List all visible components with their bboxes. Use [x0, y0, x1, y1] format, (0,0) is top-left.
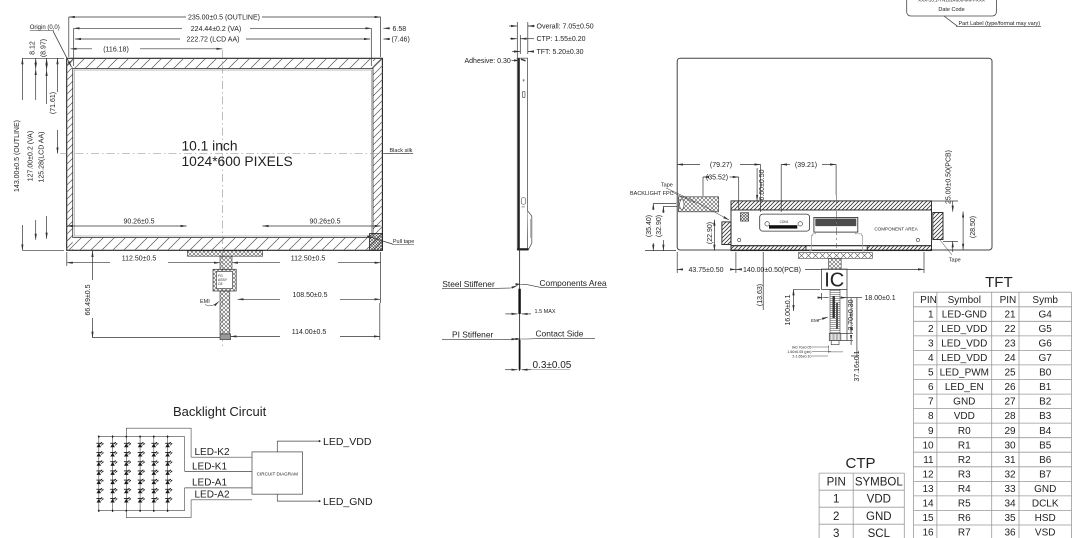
svg-text:SYMBOL: SYMBOL — [855, 477, 904, 489]
svg-text:2: 2 — [833, 511, 839, 523]
svg-text:B0: B0 — [1039, 368, 1052, 379]
svg-text:1: 1 — [833, 494, 839, 506]
svg-text:Overall: 7.05±0.50: Overall: 7.05±0.50 — [537, 24, 594, 31]
svg-text:108.50±0.5: 108.50±0.5 — [293, 292, 328, 299]
svg-text:PI Stiffener: PI Stiffener — [452, 330, 493, 340]
svg-text:6.60±0.50: 6.60±0.50 — [759, 169, 766, 200]
svg-text:125.28(LCD AA): 125.28(LCD AA) — [39, 132, 46, 183]
svg-text:7: 7 — [928, 397, 934, 408]
svg-text:Symb: Symb — [1032, 295, 1058, 306]
svg-text:LED-A1: LED-A1 — [192, 478, 227, 489]
svg-text:2-1.65±0.10: 2-1.65±0.10 — [792, 354, 811, 358]
svg-text:B5: B5 — [1039, 440, 1052, 451]
svg-text:222.72 (LCD AA): 222.72 (LCD AA) — [187, 37, 240, 44]
svg-text:0.3±0.05: 0.3±0.05 — [533, 360, 572, 371]
svg-text:B3: B3 — [1039, 411, 1052, 422]
svg-text:34: 34 — [1004, 499, 1016, 510]
svg-text:(116.18): (116.18) — [103, 46, 129, 53]
svg-text:5: 5 — [928, 368, 934, 379]
svg-text:21: 21 — [1004, 309, 1016, 320]
svg-text:SCL: SCL — [868, 528, 891, 538]
svg-text:CTP: CTP — [846, 455, 876, 472]
svg-text:(13.63): (13.63) — [757, 284, 764, 306]
svg-text:GND: GND — [953, 397, 975, 408]
svg-text:Tape: Tape — [949, 258, 961, 264]
svg-text:G4: G4 — [1039, 309, 1053, 320]
svg-text:G6: G6 — [1039, 339, 1053, 350]
svg-text:TFT: 5.20±0.30: TFT: 5.20±0.30 — [537, 49, 584, 56]
svg-text:33: 33 — [1004, 484, 1016, 495]
svg-text:COMPONENT AREA: COMPONENT AREA — [874, 227, 918, 232]
svg-text:LED_VDD: LED_VDD — [941, 324, 987, 335]
svg-text:PIN: PIN — [920, 295, 937, 306]
svg-text:8.12: 8.12 — [30, 41, 37, 55]
svg-text:66.49±0.5: 66.49±0.5 — [85, 284, 92, 315]
svg-text:1: 1 — [928, 309, 934, 320]
svg-text:9: 9 — [928, 426, 934, 437]
svg-text:EMI: EMI — [200, 299, 210, 305]
svg-text:DCLK: DCLK — [1032, 499, 1059, 510]
svg-text:16: 16 — [922, 528, 934, 538]
svg-text:24: 24 — [1004, 353, 1016, 364]
svg-text:23: 23 — [1004, 339, 1016, 350]
svg-text:VSD: VSD — [1035, 528, 1056, 538]
svg-text:Black silk: Black silk — [390, 148, 413, 154]
svg-text:27: 27 — [1004, 397, 1016, 408]
svg-text:1.5 MAX: 1.5 MAX — [535, 309, 556, 315]
svg-text:18.00±0.1: 18.00±0.1 — [865, 295, 896, 302]
svg-text:31: 31 — [1004, 455, 1016, 466]
svg-text:LED-A2: LED-A2 — [195, 490, 230, 501]
svg-text:10: 10 — [922, 440, 934, 451]
svg-text:2: 2 — [928, 324, 934, 335]
svg-text:43.75±0.50: 43.75±0.50 — [689, 267, 724, 274]
svg-text:R5: R5 — [958, 499, 971, 510]
svg-text:112.50±0.5: 112.50±0.5 — [291, 256, 326, 263]
svg-text:LED-K1: LED-K1 — [192, 461, 227, 472]
svg-text:25.00±0.50(PCB): 25.00±0.50(PCB) — [945, 150, 952, 204]
svg-text:13: 13 — [922, 484, 934, 495]
svg-text:2.70±0.30: 2.70±0.30 — [848, 299, 855, 330]
svg-text:Tape: Tape — [661, 183, 673, 189]
svg-text:R7: R7 — [958, 528, 971, 538]
svg-text:R2: R2 — [958, 455, 971, 466]
svg-text:3: 3 — [833, 528, 839, 538]
svg-text:R1: R1 — [958, 440, 971, 451]
svg-text:9x0.70±0.05: 9x0.70±0.05 — [792, 345, 812, 349]
svg-text:B1: B1 — [1039, 382, 1052, 393]
svg-text:22: 22 — [1004, 324, 1016, 335]
svg-text:(35.52): (35.52) — [706, 175, 728, 182]
svg-text:12: 12 — [922, 470, 934, 481]
svg-text:G5: G5 — [1039, 324, 1053, 335]
svg-text:IC: IC — [824, 269, 844, 291]
svg-text:R6: R6 — [958, 513, 971, 524]
svg-text:26: 26 — [1004, 382, 1016, 393]
svg-text:Backlight Circuit: Backlight Circuit — [173, 404, 267, 419]
svg-text:CIRCUIT DIAGRAM: CIRCUIT DIAGRAM — [257, 471, 298, 476]
svg-text:C8: C8 — [218, 282, 222, 286]
svg-text:LED_VDD: LED_VDD — [941, 353, 987, 364]
svg-text:LED_VDD: LED_VDD — [941, 339, 987, 350]
svg-text:6: 6 — [928, 382, 934, 393]
svg-text:143.00±0.5 (OUTLINE): 143.00±0.5 (OUTLINE) — [14, 120, 21, 192]
svg-text:R4: R4 — [958, 484, 971, 495]
svg-text:Steel Stiffener: Steel Stiffener — [442, 279, 495, 289]
svg-text:28: 28 — [1004, 411, 1016, 422]
svg-text:LED-GND: LED-GND — [942, 309, 987, 320]
svg-text:1.60±0.05 (pin): 1.60±0.05 (pin) — [787, 350, 811, 354]
svg-text:30: 30 — [1004, 440, 1016, 451]
svg-text:HSD: HSD — [1035, 513, 1056, 524]
svg-text:36: 36 — [1004, 528, 1016, 538]
svg-text:Pull tape: Pull tape — [393, 239, 414, 245]
svg-text:(71.61): (71.61) — [50, 92, 57, 114]
svg-text:114.00±0.5: 114.00±0.5 — [292, 329, 327, 336]
svg-text:B4: B4 — [1039, 426, 1052, 437]
svg-text:(35.40): (35.40) — [646, 215, 653, 237]
svg-text:37.16±0.1: 37.16±0.1 — [854, 350, 861, 381]
svg-text:112.50±0.5: 112.50±0.5 — [122, 256, 157, 263]
svg-text:(79.27): (79.27) — [710, 162, 732, 169]
svg-text:8: 8 — [928, 411, 934, 422]
svg-text:GND: GND — [1034, 484, 1056, 495]
svg-text:90.26±0.5: 90.26±0.5 — [123, 219, 154, 226]
svg-text:B6: B6 — [1039, 455, 1052, 466]
svg-text:VDD: VDD — [867, 494, 891, 506]
svg-text:GND: GND — [866, 511, 892, 523]
svg-text:LED_EN: LED_EN — [945, 382, 984, 393]
svg-text:3: 3 — [928, 339, 934, 350]
svg-text:10.1 inch: 10.1 inch — [182, 139, 238, 154]
svg-text:G7: G7 — [1039, 353, 1053, 364]
svg-text:25: 25 — [1004, 368, 1016, 379]
svg-text:14: 14 — [922, 499, 934, 510]
svg-text:BACKLIGHT FPC: BACKLIGHT FPC — [630, 191, 674, 197]
svg-text:127.00±0.2 (VA): 127.00±0.2 (VA) — [28, 131, 35, 181]
svg-text:CTP: 1.55±0.20: CTP: 1.55±0.20 — [537, 36, 586, 43]
svg-text:6.58: 6.58 — [393, 26, 407, 33]
svg-text:32: 32 — [1004, 470, 1016, 481]
svg-text:15: 15 — [922, 513, 934, 524]
svg-text:(39.21): (39.21) — [795, 162, 817, 169]
svg-text:TFT: TFT — [985, 274, 1013, 291]
svg-text:LED_VDD: LED_VDD — [323, 436, 372, 448]
svg-text:Date Code: Date Code — [938, 7, 964, 13]
svg-text:Origin (0,0): Origin (0,0) — [30, 25, 60, 31]
svg-text:VDD: VDD — [954, 411, 975, 422]
svg-text:PIN: PIN — [827, 477, 846, 489]
svg-text:35: 35 — [1004, 513, 1016, 524]
svg-text:Adhesive: 0.30: Adhesive: 0.30 — [465, 58, 511, 65]
svg-text:(28.50): (28.50) — [970, 216, 977, 238]
svg-text:4: 4 — [928, 353, 934, 364]
svg-text:Symbol: Symbol — [948, 295, 981, 306]
svg-text:XXX-10.1-TN1024600-MIPI-XXX: XXX-10.1-TN1024600-MIPI-XXX — [918, 0, 985, 3]
svg-text:(8.97): (8.97) — [41, 39, 48, 57]
svg-text:16.00±0.1: 16.00±0.1 — [785, 294, 792, 325]
svg-text:LED_PWM: LED_PWM — [940, 368, 989, 379]
svg-text:11: 11 — [923, 455, 934, 466]
svg-text:90.26±0.5: 90.26±0.5 — [309, 219, 340, 226]
svg-text:R0: R0 — [958, 426, 971, 437]
svg-text:(7.46): (7.46) — [392, 37, 410, 44]
svg-text:B7: B7 — [1039, 470, 1052, 481]
svg-text:Contact Side: Contact Side — [536, 328, 584, 338]
svg-text:Components Area: Components Area — [540, 278, 607, 288]
svg-text:140.00±0.50(PCB): 140.00±0.50(PCB) — [743, 267, 801, 274]
svg-text:(32.90): (32.90) — [656, 215, 663, 237]
svg-text:(22.90): (22.90) — [707, 222, 714, 244]
svg-text:PIN: PIN — [1000, 295, 1017, 306]
svg-text:B2: B2 — [1039, 397, 1052, 408]
svg-text:LED-K2: LED-K2 — [195, 447, 230, 458]
svg-text:R3: R3 — [958, 470, 971, 481]
svg-text:1024*600 PIXELS: 1024*600 PIXELS — [182, 154, 293, 169]
svg-text:224.44±0.2 (VA): 224.44±0.2 (VA) — [191, 26, 241, 33]
svg-text:LED_GND: LED_GND — [323, 496, 373, 508]
svg-text:CON1: CON1 — [780, 220, 789, 224]
svg-text:235.00±0.5 (OUTLINE): 235.00±0.5 (OUTLINE) — [188, 15, 260, 22]
svg-text:29: 29 — [1004, 426, 1016, 437]
